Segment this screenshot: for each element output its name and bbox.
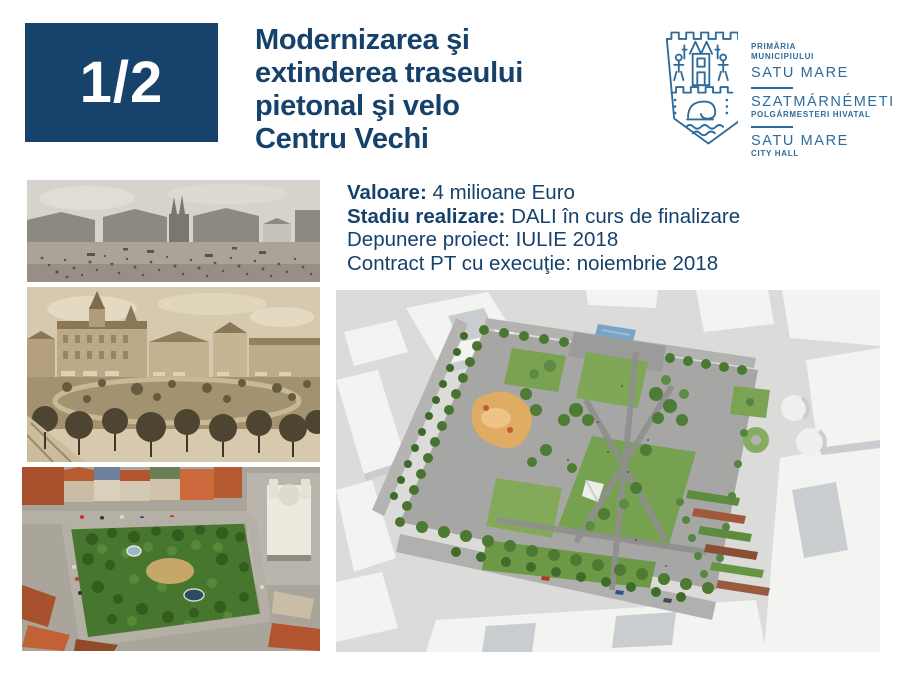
city-hall-logo-text: PRIMĂRIA MUNICIPIULUI SATU MARE SZATMÁRN… bbox=[751, 26, 895, 159]
logo-text-line: MUNICIPIULUI bbox=[751, 52, 895, 62]
logo-divider bbox=[751, 126, 793, 128]
city-hall-logo: PRIMĂRIA MUNICIPIULUI SATU MARE SZATMÁRN… bbox=[664, 26, 895, 159]
project-details: Valoare: 4 milioane Euro Stadiu realizar… bbox=[347, 181, 740, 275]
logo-text-line: SATU MARE bbox=[751, 133, 895, 149]
logo-text-line: POLGÁRMESTERI HIVATAL bbox=[751, 110, 895, 120]
logo-text-line: CITY HALL bbox=[751, 149, 895, 159]
city-crest-icon bbox=[664, 26, 738, 159]
detail-line: Valoare: 4 milioane Euro bbox=[347, 181, 740, 205]
presentation-slide: 1/2 Modernizarea şi extinderea traseului… bbox=[0, 0, 900, 675]
title-line: Centru Vechi bbox=[255, 123, 523, 156]
detail-line: Stadiu realizare: DALI în curs de finali… bbox=[347, 205, 740, 229]
vintage-square-postcard-photo bbox=[27, 287, 320, 462]
logo-divider bbox=[751, 87, 793, 89]
logo-text-line: SZATMÁRNÉMETI bbox=[751, 94, 895, 110]
logo-text-line: SATU MARE bbox=[751, 65, 895, 81]
title-line: extinderea traseului bbox=[255, 57, 523, 90]
title-line: pietonal şi velo bbox=[255, 90, 523, 123]
detail-line: Contract PT cu execuţie: noiembrie 2018 bbox=[347, 252, 740, 276]
page-title: Modernizarea şi extinderea traseului pie… bbox=[255, 24, 523, 156]
detail-line: Depunere proiect: IULIE 2018 bbox=[347, 228, 740, 252]
aerial-park-photo bbox=[22, 467, 320, 651]
page-number: 1/2 bbox=[80, 49, 164, 116]
historic-market-square-photo bbox=[27, 180, 320, 282]
title-line: Modernizarea şi bbox=[255, 24, 523, 57]
page-number-badge: 1/2 bbox=[25, 23, 218, 142]
logo-text-line: PRIMĂRIA bbox=[751, 42, 895, 52]
park-redesign-render bbox=[336, 290, 880, 652]
